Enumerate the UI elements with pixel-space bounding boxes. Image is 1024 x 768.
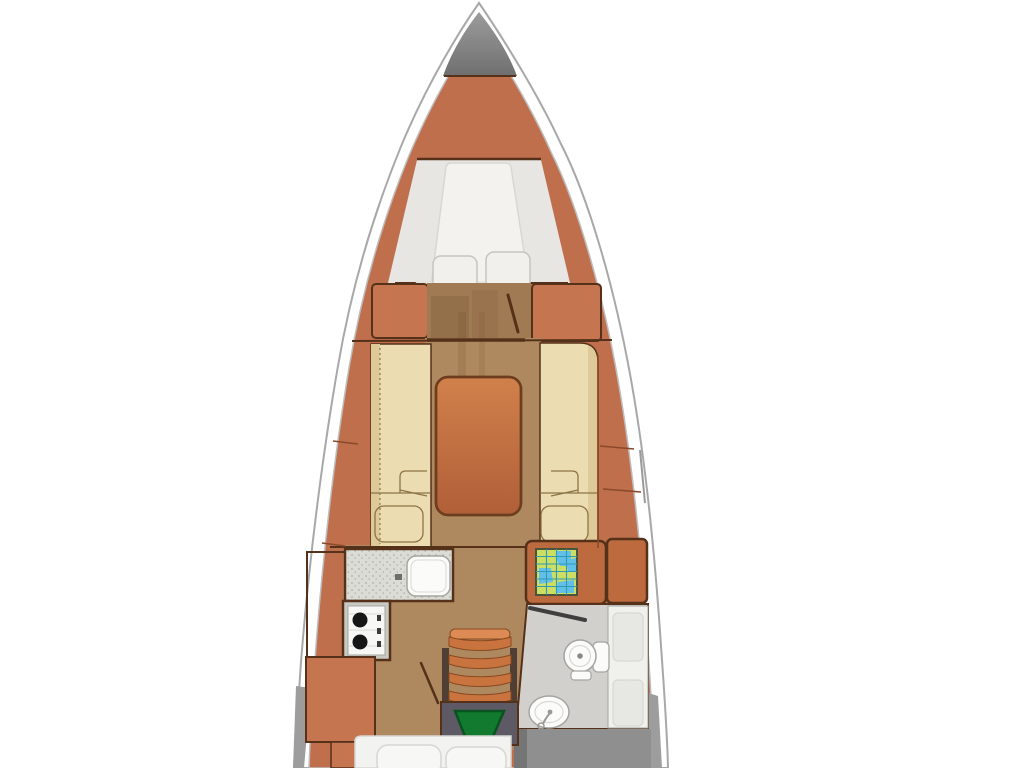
head-compartment <box>516 604 648 729</box>
boat-floorplan-illustration <box>0 0 1024 768</box>
nav-station <box>526 539 647 604</box>
aft-berth-cushion-2 <box>446 747 506 768</box>
head-counter-locker-2 <box>613 680 643 726</box>
wardrobe-port <box>372 284 428 338</box>
settee-port <box>371 344 431 548</box>
steps-top-lip <box>450 629 510 639</box>
stove-knob-1 <box>377 615 381 621</box>
stove-knob-2 <box>377 628 381 634</box>
head-counter-locker-1 <box>613 613 643 661</box>
nav-locker <box>607 539 647 603</box>
toilet-drain <box>577 653 583 659</box>
settee-starboard <box>540 343 598 548</box>
cockpit-sole <box>514 729 651 768</box>
aft-berth-cushion-1 <box>377 745 441 768</box>
galley-drain <box>395 574 402 580</box>
steps-rail-left <box>442 648 449 706</box>
stove-burner-rear <box>353 635 368 650</box>
stove-knob-3 <box>377 641 381 647</box>
toilet-base <box>571 671 591 680</box>
salon-table <box>436 377 521 515</box>
stove-burner-front <box>353 613 368 628</box>
aft-port-cabinet <box>306 657 375 742</box>
aft-berth <box>355 736 511 768</box>
floorplan-canvas <box>0 0 1024 768</box>
wardrobe-starboard <box>532 284 601 341</box>
